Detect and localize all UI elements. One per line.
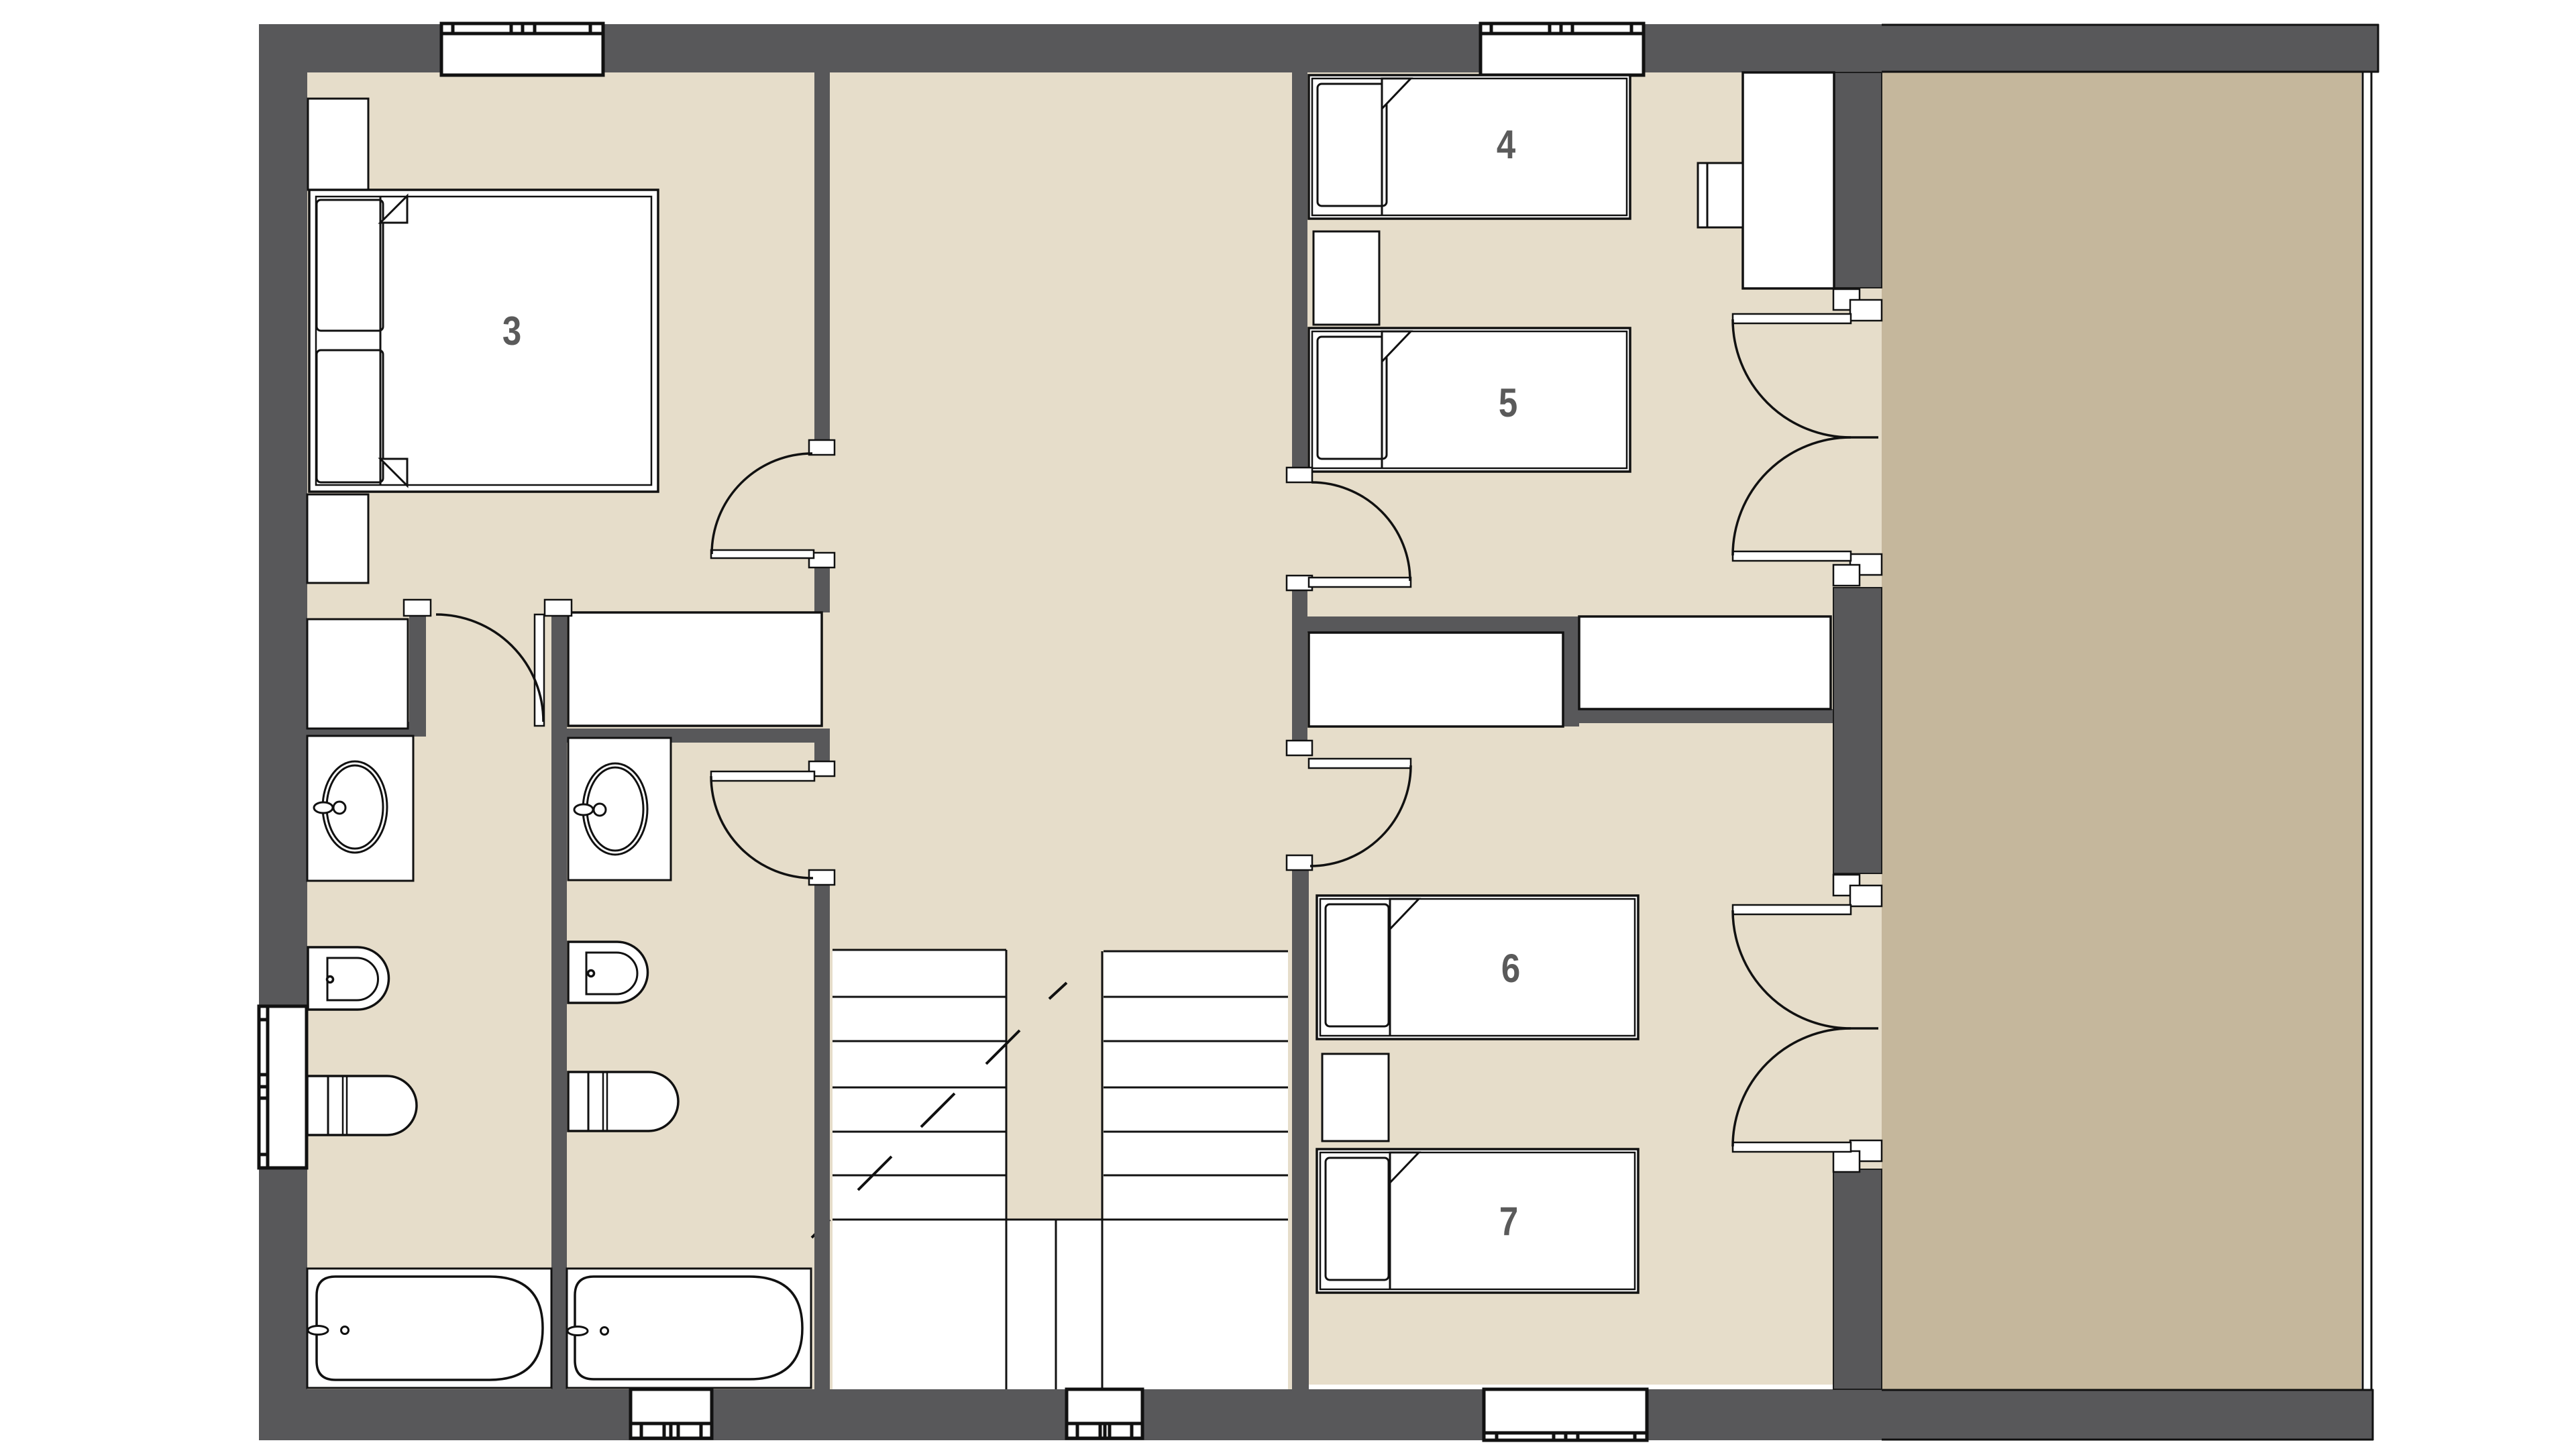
svg-text:4: 4 (1497, 122, 1515, 167)
svg-text:7: 7 (1499, 1199, 1518, 1244)
svg-text:6: 6 (1501, 946, 1520, 991)
svg-text:3: 3 (502, 309, 521, 354)
svg-text:5: 5 (1499, 380, 1517, 425)
